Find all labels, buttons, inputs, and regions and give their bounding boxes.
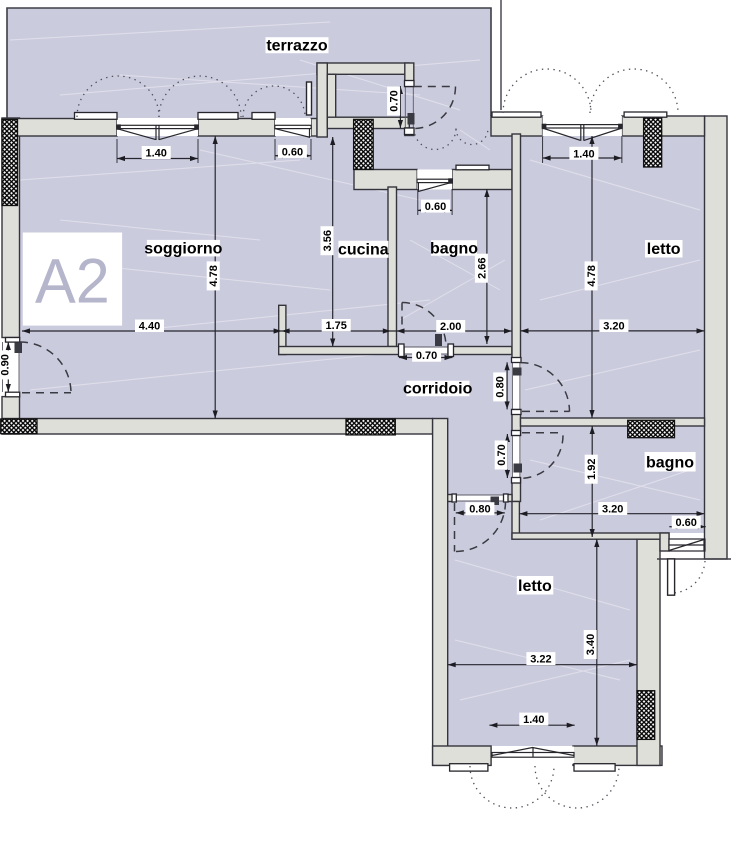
svg-text:3.40: 3.40 (585, 634, 597, 655)
svg-text:1.40: 1.40 (145, 148, 166, 160)
svg-text:0.60: 0.60 (675, 517, 696, 529)
svg-text:0.80: 0.80 (469, 504, 490, 516)
svg-text:3.20: 3.20 (602, 504, 623, 516)
svg-text:0.70: 0.70 (416, 350, 437, 362)
svg-text:letto: letto (647, 241, 681, 258)
svg-text:2.66: 2.66 (476, 257, 488, 278)
svg-text:1.75: 1.75 (325, 320, 346, 332)
svg-text:terrazzo: terrazzo (266, 38, 328, 55)
svg-text:0.60: 0.60 (425, 201, 446, 213)
svg-text:soggiorno: soggiorno (144, 241, 222, 258)
svg-text:cucina: cucina (338, 242, 389, 259)
svg-text:3.20: 3.20 (603, 321, 624, 333)
svg-text:A2: A2 (35, 247, 110, 317)
svg-text:0.70: 0.70 (496, 444, 508, 465)
svg-text:4.40: 4.40 (139, 321, 160, 333)
svg-text:letto: letto (518, 578, 552, 595)
svg-text:3.56: 3.56 (322, 230, 334, 251)
svg-text:1.92: 1.92 (586, 458, 598, 479)
svg-text:bagno: bagno (646, 454, 694, 471)
svg-text:corridoio: corridoio (403, 381, 473, 398)
svg-text:4.78: 4.78 (208, 265, 220, 286)
svg-text:0.70: 0.70 (389, 90, 401, 111)
svg-text:0.90: 0.90 (0, 354, 12, 375)
svg-text:4.78: 4.78 (586, 265, 598, 286)
svg-text:bagno: bagno (430, 241, 478, 258)
svg-text:3.22: 3.22 (530, 654, 551, 666)
svg-text:2.00: 2.00 (440, 321, 461, 333)
svg-text:0.60: 0.60 (282, 146, 303, 158)
svg-text:0.80: 0.80 (495, 376, 507, 397)
svg-text:1.40: 1.40 (573, 148, 594, 160)
svg-text:1.40: 1.40 (523, 714, 544, 726)
